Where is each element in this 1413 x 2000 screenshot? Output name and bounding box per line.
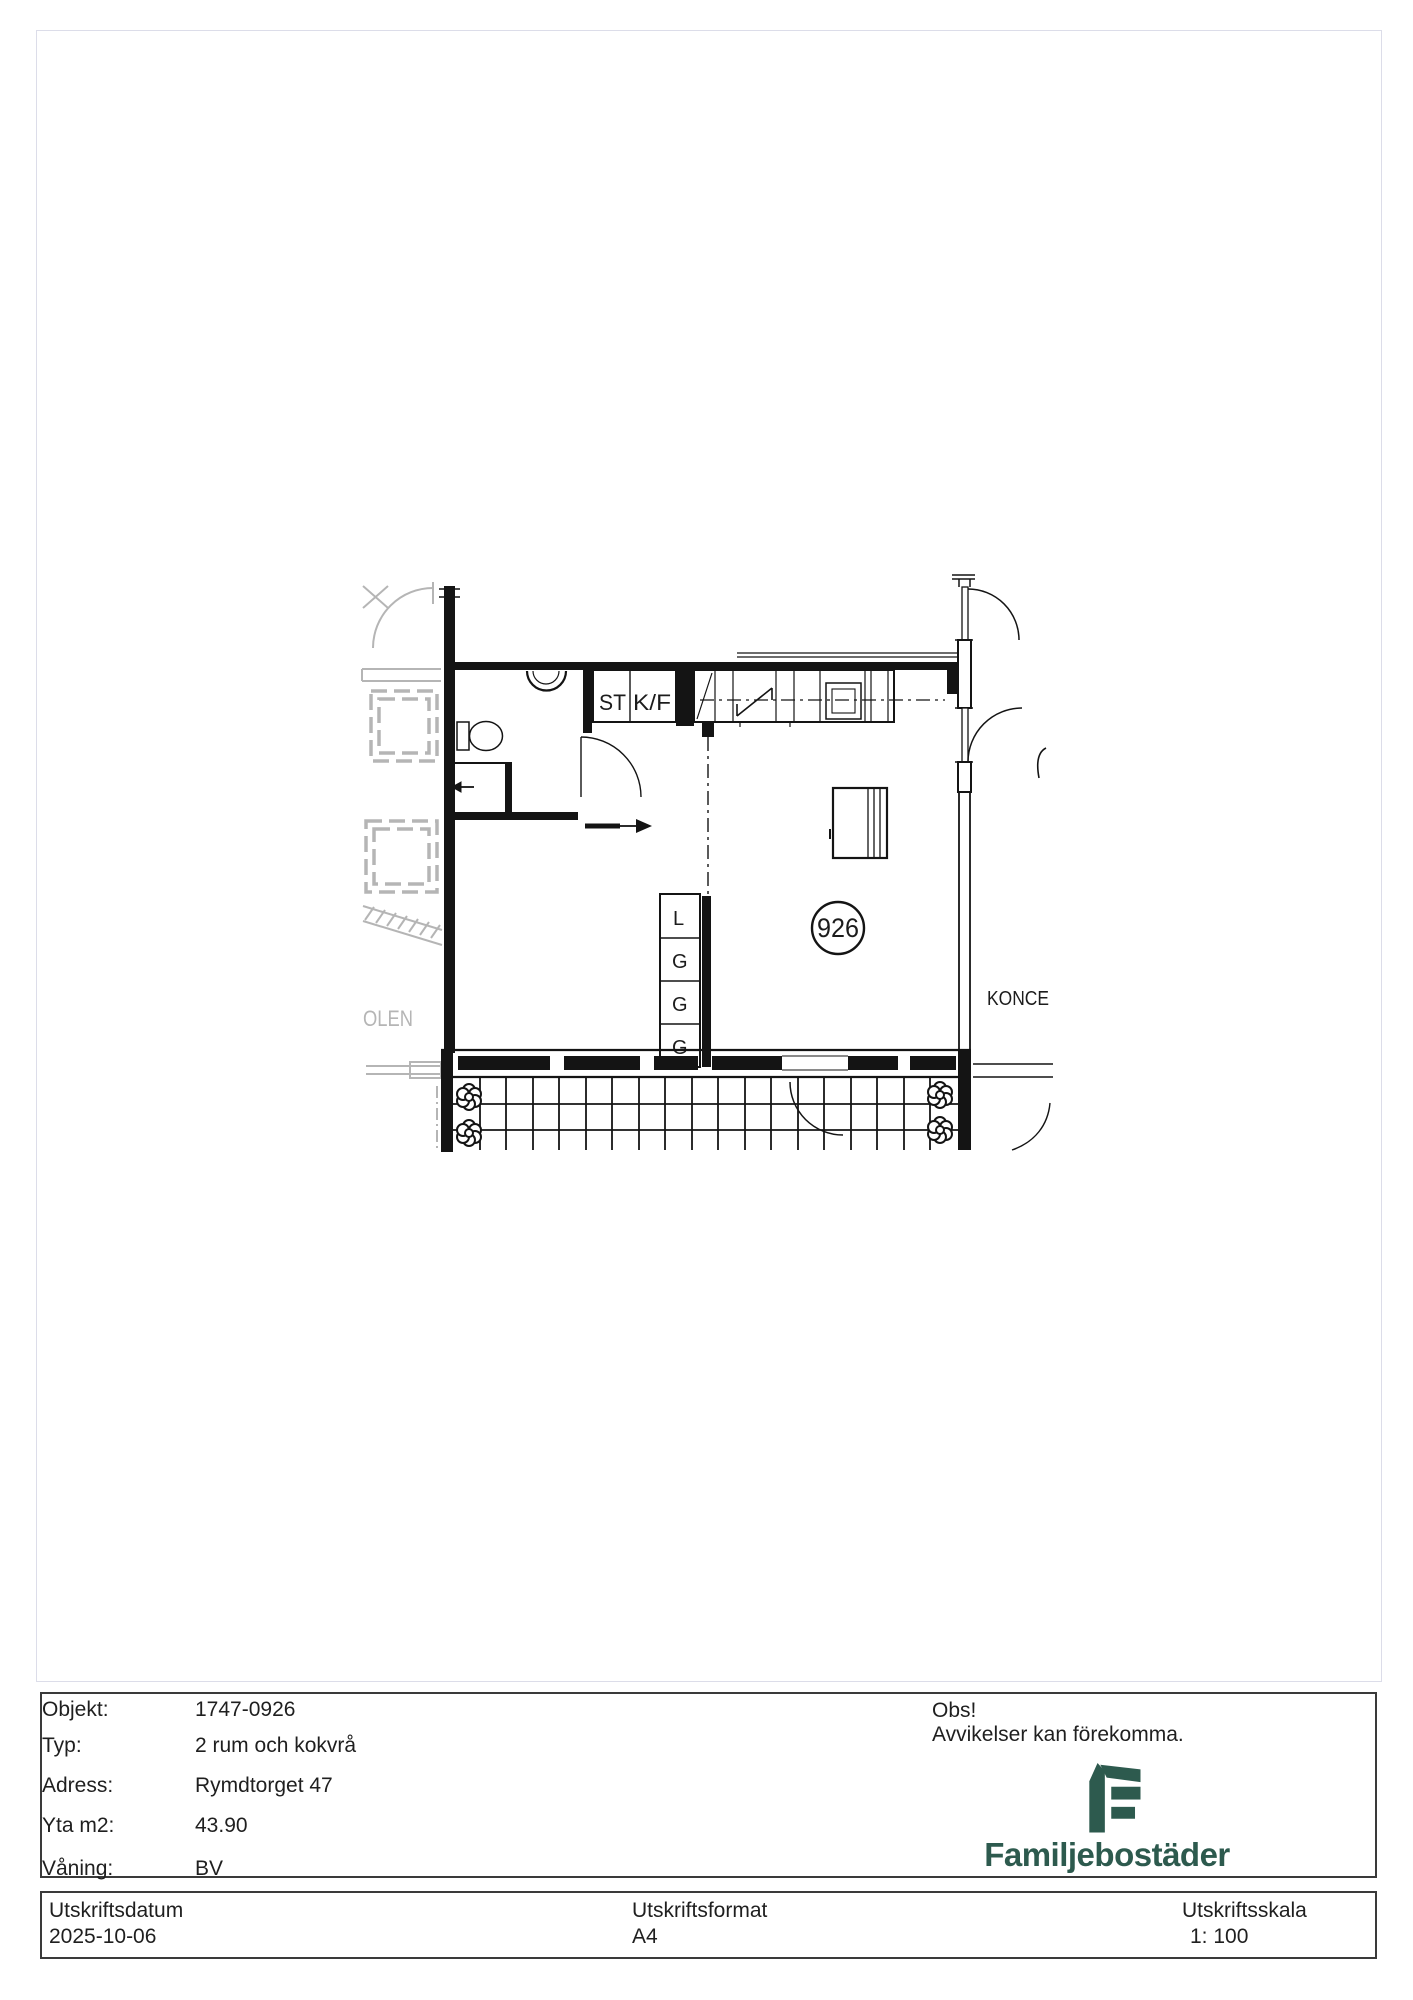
info-value: 1747-0926 xyxy=(195,1698,295,1721)
floorplan-document-page: { "floorplan": { "room_number": "926", "… xyxy=(0,0,1413,2000)
print-label: Utskriftsformat xyxy=(632,1899,767,1923)
room-number-badge: 926 xyxy=(812,902,864,954)
koncept-watermark-text: KONCE xyxy=(987,988,1049,1010)
info-label: Våning: xyxy=(42,1857,113,1880)
floorplan-drawing: OLEN xyxy=(340,555,1080,1170)
print-info-box: Utskriftsdatum 2025-10-06 Utskriftsforma… xyxy=(40,1891,1377,1959)
partition-and-wardrobes xyxy=(660,737,708,1067)
print-value: A4 xyxy=(632,1925,658,1949)
wardrobe-label-g2: G xyxy=(672,994,688,1016)
print-value: 2025-10-06 xyxy=(49,1925,156,1949)
context-stair-hatch xyxy=(363,906,442,945)
info-value: Rymdtorget 47 xyxy=(195,1774,333,1797)
bathroom-door-arc xyxy=(581,737,641,797)
print-label: Utskriftsdatum xyxy=(49,1899,183,1923)
info-value: 43.90 xyxy=(195,1814,248,1837)
info-value: 2 rum och kokvrå xyxy=(195,1734,356,1757)
context-walkway-lines xyxy=(366,1062,441,1152)
info-value: BV xyxy=(195,1857,223,1880)
right-wall xyxy=(952,575,1046,1050)
info-label: Typ: xyxy=(42,1734,82,1757)
wardrobe-label-g3: G xyxy=(672,1037,688,1059)
tv-cabinet-icon xyxy=(830,788,887,858)
notice-block: Obs! Avvikelser kan förekomma. xyxy=(932,1699,1184,1747)
print-value: 1: 100 xyxy=(1190,1925,1248,1949)
notice-text: Avvikelser kan förekomma. xyxy=(932,1723,1184,1747)
info-label: Adress: xyxy=(42,1774,113,1797)
notice-title: Obs! xyxy=(932,1699,1184,1723)
room-number-text: 926 xyxy=(817,913,859,943)
context-window-shafts xyxy=(366,691,437,892)
entry-arrow-icon xyxy=(585,819,652,833)
familjebostader-logo-icon xyxy=(1082,1752,1146,1830)
context-text-label: OLEN xyxy=(363,1006,413,1031)
closet-label-st: ST xyxy=(599,690,626,715)
info-label: Yta m2: xyxy=(42,1814,114,1837)
brand-wordmark: Familjebostäder xyxy=(957,1836,1257,1874)
property-info-box: Objekt: 1747-0926 Typ: 2 rum och kokvrå … xyxy=(40,1692,1377,1878)
info-label: Objekt: xyxy=(42,1698,109,1721)
context-building-lines xyxy=(362,582,441,681)
fridge-freezer-label-kf: K/F xyxy=(633,690,671,715)
print-label: Utskriftsskala xyxy=(1182,1899,1307,1923)
toilet-icon xyxy=(457,722,469,750)
wardrobe-label-l: L xyxy=(673,908,684,930)
wardrobe-label-g1: G xyxy=(672,951,688,973)
